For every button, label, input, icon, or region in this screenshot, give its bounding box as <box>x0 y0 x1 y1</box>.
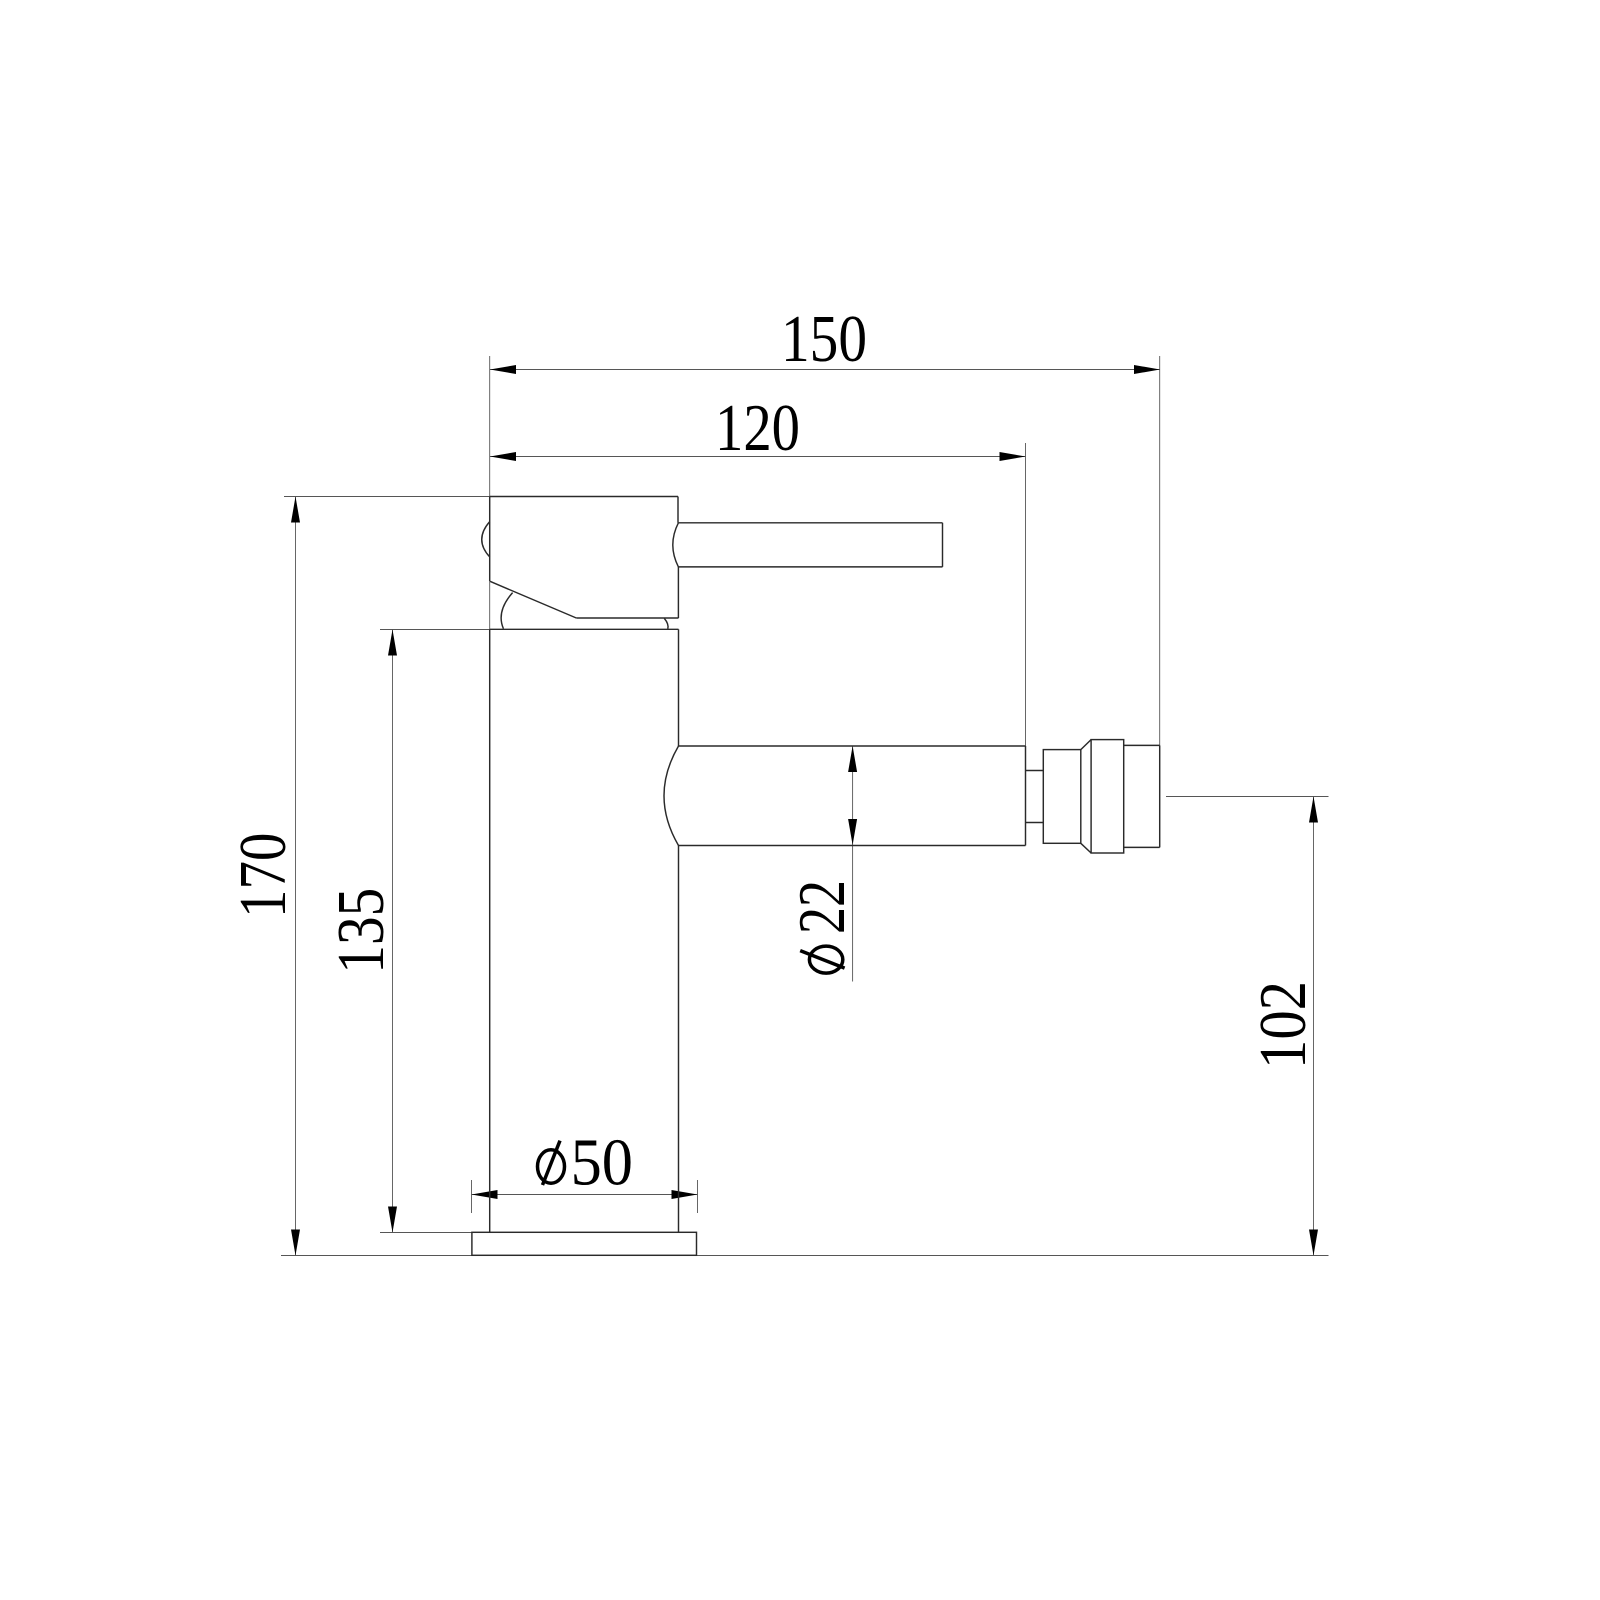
svg-text:50: 50 <box>571 1125 633 1199</box>
svg-text:120: 120 <box>715 391 800 465</box>
svg-text:135: 135 <box>324 888 398 974</box>
svg-text:170: 170 <box>226 833 300 918</box>
svg-text:22: 22 <box>785 880 859 934</box>
svg-text:150: 150 <box>781 302 867 376</box>
svg-text:102: 102 <box>1246 981 1320 1069</box>
